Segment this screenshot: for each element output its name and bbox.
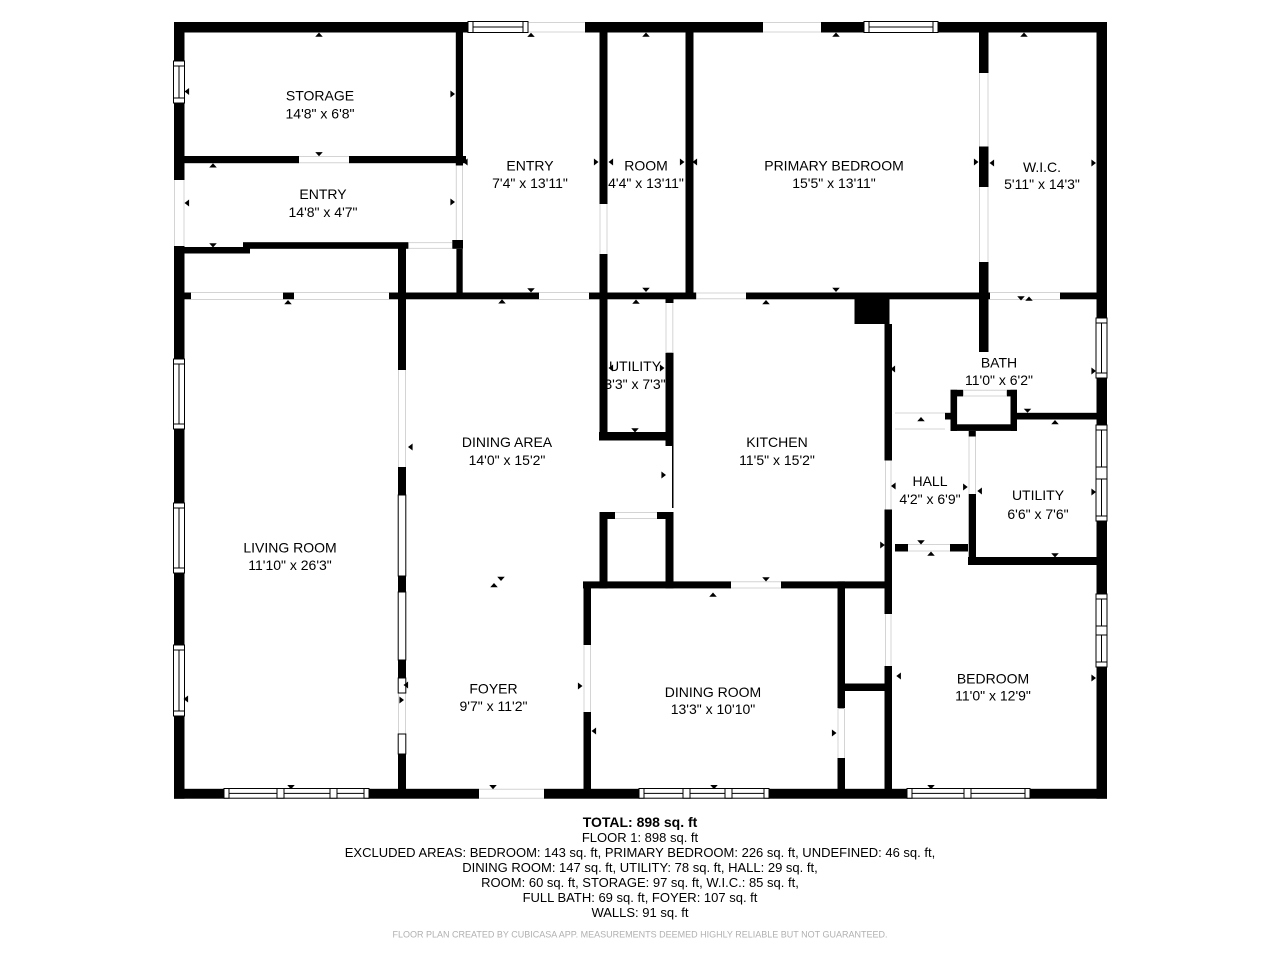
svg-text:ROOM: ROOM bbox=[624, 158, 668, 174]
svg-text:9'7" x 11'2": 9'7" x 11'2" bbox=[460, 698, 528, 714]
svg-text:FLOOR 1: 898 sq. ft: FLOOR 1: 898 sq. ft bbox=[582, 830, 699, 845]
svg-text:FULL BATH: 69 sq. ft, FOYER: 1: FULL BATH: 69 sq. ft, FOYER: 107 sq. ft bbox=[523, 890, 758, 905]
svg-text:FOYER: FOYER bbox=[469, 681, 517, 697]
svg-text:15'5" x 13'11": 15'5" x 13'11" bbox=[792, 175, 876, 191]
svg-text:LIVING ROOM: LIVING ROOM bbox=[243, 540, 336, 556]
svg-text:ROOM: 60 sq. ft, STORAGE: 97 s: ROOM: 60 sq. ft, STORAGE: 97 sq. ft, W.I… bbox=[481, 875, 799, 890]
svg-text:5'11" x 14'3": 5'11" x 14'3" bbox=[1004, 176, 1080, 192]
svg-text:BEDROOM: BEDROOM bbox=[957, 671, 1029, 687]
svg-text:HALL: HALL bbox=[912, 473, 947, 489]
svg-text:14'8" x 6'8": 14'8" x 6'8" bbox=[286, 106, 355, 122]
svg-text:WALLS: 91 sq. ft: WALLS: 91 sq. ft bbox=[591, 905, 688, 920]
svg-text:UTILITY: UTILITY bbox=[1012, 487, 1065, 503]
svg-text:ENTRY: ENTRY bbox=[299, 186, 347, 202]
svg-text:W.I.C.: W.I.C. bbox=[1023, 159, 1061, 175]
svg-text:3'3" x 7'3": 3'3" x 7'3" bbox=[604, 376, 665, 392]
svg-text:11'10" x 26'3": 11'10" x 26'3" bbox=[248, 557, 332, 573]
svg-text:BATH: BATH bbox=[981, 355, 1017, 371]
svg-text:DINING ROOM: 147 sq. ft, UTILI: DINING ROOM: 147 sq. ft, UTILITY: 78 sq.… bbox=[462, 860, 817, 875]
svg-text:4'4" x 13'11": 4'4" x 13'11" bbox=[608, 175, 684, 191]
svg-text:EXCLUDED AREAS: BEDROOM: 143 s: EXCLUDED AREAS: BEDROOM: 143 sq. ft, PRI… bbox=[345, 845, 935, 860]
svg-text:11'0" x 6'2": 11'0" x 6'2" bbox=[965, 372, 1033, 388]
svg-text:11'0" x 12'9": 11'0" x 12'9" bbox=[955, 688, 1031, 704]
svg-text:14'8" x 4'7": 14'8" x 4'7" bbox=[289, 204, 358, 220]
svg-text:7'4" x 13'11": 7'4" x 13'11" bbox=[492, 175, 568, 191]
svg-text:DINING AREA: DINING AREA bbox=[462, 434, 553, 450]
svg-text:6'6" x 7'6": 6'6" x 7'6" bbox=[1007, 506, 1068, 522]
svg-text:ENTRY: ENTRY bbox=[506, 158, 554, 174]
svg-text:13'3" x 10'10": 13'3" x 10'10" bbox=[671, 701, 756, 717]
svg-text:FLOOR PLAN CREATED BY CUBICASA: FLOOR PLAN CREATED BY CUBICASA APP. MEAS… bbox=[393, 930, 888, 940]
svg-text:UTILITY: UTILITY bbox=[609, 358, 662, 374]
svg-text:TOTAL: 898 sq. ft: TOTAL: 898 sq. ft bbox=[583, 814, 698, 830]
svg-text:KITCHEN: KITCHEN bbox=[746, 434, 807, 450]
svg-text:DINING ROOM: DINING ROOM bbox=[665, 684, 761, 700]
svg-text:14'0" x 15'2": 14'0" x 15'2" bbox=[469, 452, 546, 468]
svg-text:STORAGE: STORAGE bbox=[286, 88, 354, 104]
svg-text:11'5" x 15'2": 11'5" x 15'2" bbox=[739, 452, 815, 468]
svg-text:PRIMARY BEDROOM: PRIMARY BEDROOM bbox=[764, 158, 904, 174]
svg-text:4'2" x 6'9": 4'2" x 6'9" bbox=[899, 491, 960, 507]
